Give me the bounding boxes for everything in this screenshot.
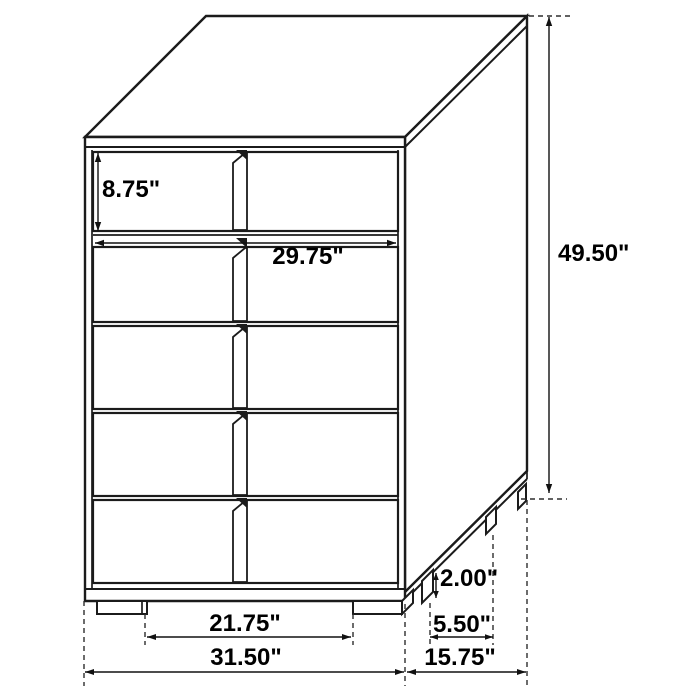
label-overall-width: 31.50" [210,644,281,671]
label-overall-height: 49.50" [558,240,629,267]
pull-5 [233,501,247,582]
pull-2 [233,248,247,321]
pull-1 [233,153,247,230]
chest-drawing-svg: 8.75" 29.75" 49.50" 2.00" 5.50" 21.75" 3… [0,0,700,700]
drawer-pulls [233,150,247,582]
front-right-leg [353,601,402,614]
label-side-leg-gap: 5.50" [433,611,491,638]
pull-4 [233,414,247,495]
pull-3 [233,327,247,408]
arrow-icon [407,669,416,675]
arrow-icon [517,669,526,675]
arrow-icon [433,591,439,598]
arrow-icon [546,17,552,26]
label-front-leg-gap: 21.75" [209,610,280,637]
arrow-icon [395,669,404,675]
front-left-leg [97,601,147,614]
dimension-diagram: 8.75" 29.75" 49.50" 2.00" 5.50" 21.75" 3… [0,0,700,700]
arrow-icon [342,634,351,640]
label-leg-height: 2.00" [440,565,498,592]
label-drawer-width: 29.75" [272,243,343,270]
label-top-drawer-height: 8.75" [102,176,160,203]
label-overall-depth: 15.75" [424,644,495,671]
arrow-icon [85,669,94,675]
arrow-icon [147,634,156,640]
arrow-icon [433,573,439,580]
arrow-icon [546,484,552,493]
